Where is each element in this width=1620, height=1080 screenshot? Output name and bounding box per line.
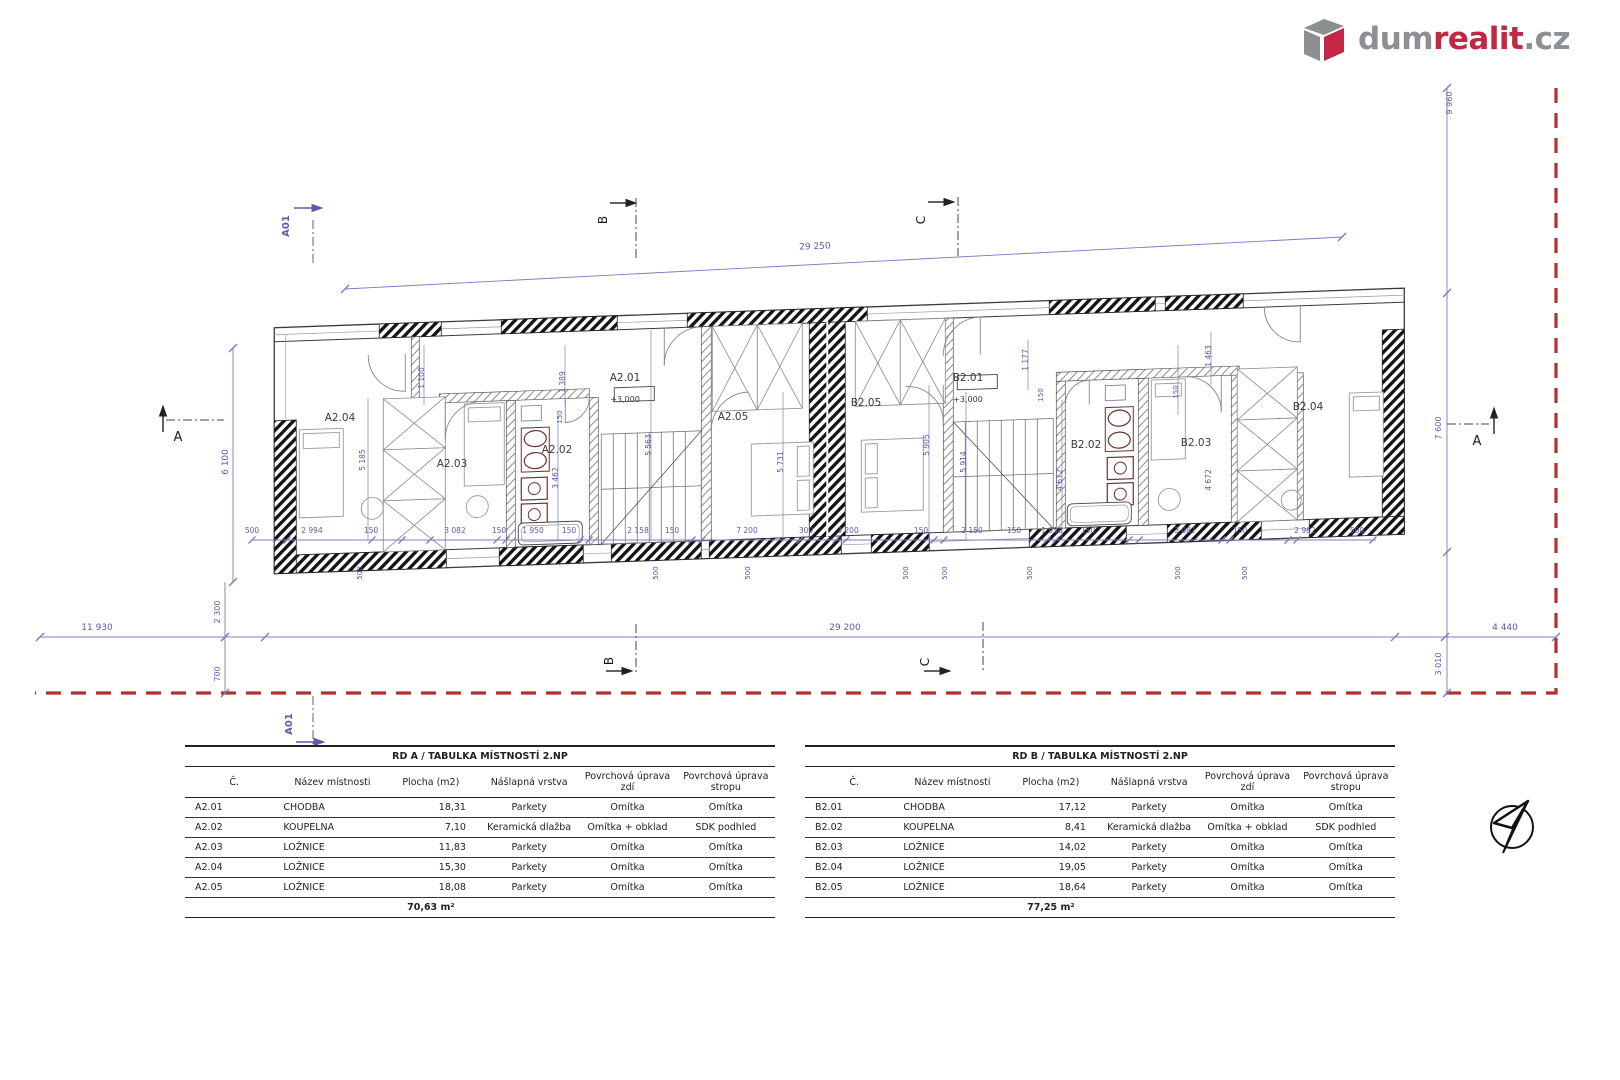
table-row: A2.01CHODBA18,31ParketyOmítkaOmítka: [185, 798, 775, 818]
table-title-text: RD B / TABULKA MÍSTNOSTÍ 2.NP: [805, 746, 1395, 767]
dim-3010: 3 010: [1434, 653, 1443, 676]
section-marker-a01-top: A01: [281, 215, 292, 237]
dim-500-3: 500: [744, 566, 752, 579]
dim-5731: 5 731: [776, 451, 785, 473]
table-title: RD A / TABULKA MÍSTNOSTÍ 2.NP: [185, 746, 775, 767]
dim-row-9: 150: [665, 526, 680, 535]
table-row: B2.03LOŽNICE14,02ParketyOmítkaOmítka: [805, 838, 1395, 858]
table-cell: 18,31: [382, 798, 480, 818]
dim-1463: 1 463: [1204, 345, 1213, 367]
table-header-cell: Plocha (m2): [382, 767, 480, 798]
table-total-value: 70,63 m²: [382, 898, 480, 918]
table-cell: A2.04: [185, 858, 283, 878]
table-cell: CHODBA: [283, 798, 381, 818]
room-label-a2-05: A2.05: [718, 411, 749, 423]
dim-500-4: 500: [902, 566, 910, 579]
dim-row-4: 3 082: [444, 526, 466, 535]
dim-row-8: 2 158: [627, 526, 649, 535]
floor-plan-page: dumrealit.cz: [0, 0, 1620, 1080]
table-cell: Keramická dlažba: [480, 818, 578, 838]
table-cell: SDK podhled: [677, 818, 775, 838]
table-header-cell: Nášlapná vrstva: [1100, 767, 1198, 798]
dim-1177: 1 177: [1021, 349, 1030, 371]
table-cell: Omítka: [1297, 878, 1395, 898]
table-cell: Omítka: [1198, 798, 1296, 818]
section-marker-a-right: A: [1473, 434, 1482, 449]
table-cell: B2.02: [805, 818, 903, 838]
table-cell: LOŽNICE: [903, 878, 1001, 898]
table-total-row: 70,63 m²: [185, 898, 775, 918]
dim-5905: 5 905: [922, 434, 931, 456]
table-cell: KOUPELNA: [283, 818, 381, 838]
dim-row-14: 2 150: [961, 526, 983, 535]
table-cell: A2.02: [185, 818, 283, 838]
room-table-a: RD A / TABULKA MÍSTNOSTÍ 2.NPČ.Název mís…: [185, 745, 775, 918]
table-cell: 15,30: [382, 858, 480, 878]
room-table-b: RD B / TABULKA MÍSTNOSTÍ 2.NPČ.Název mís…: [805, 745, 1395, 918]
table-header-cell: Povrchová úprava stropu: [1297, 767, 1395, 798]
dim-row-13: 150: [914, 526, 929, 535]
dim-row-16: 1 950: [1041, 526, 1063, 535]
table-row: A2.02KOUPELNA7,10Keramická dlažbaOmítka …: [185, 818, 775, 838]
table-cell: Omítka: [578, 838, 676, 858]
table-total-value: 77,25 m²: [1002, 898, 1100, 918]
dim-150-b: 150: [1037, 388, 1045, 401]
dim-row-15: 150: [1007, 526, 1022, 535]
elevation-label-a: +3,000: [610, 395, 640, 404]
dim-row-7: 150: [562, 526, 577, 535]
dim-row-10: 7 200: [736, 526, 758, 535]
dim-total-top: 29 250: [799, 241, 831, 252]
dim-right-offset: 4 440: [1492, 623, 1518, 633]
table-row: B2.04LOŽNICE19,05ParketyOmítkaOmítka: [805, 858, 1395, 878]
table-cell: Parkety: [1100, 858, 1198, 878]
table-cell: LOŽNICE: [283, 878, 381, 898]
dim-1100: 1 100: [417, 367, 426, 389]
table-cell: Parkety: [480, 798, 578, 818]
room-label-b2-03: B2.03: [1181, 437, 1212, 449]
table-header-cell: Č.: [185, 767, 283, 798]
table-header-row: Č.Název místnostiPlocha (m2)Nášlapná vrs…: [185, 767, 775, 798]
table-cell: A2.05: [185, 878, 283, 898]
table-cell: Parkety: [1100, 838, 1198, 858]
table-cell: LOŽNICE: [903, 838, 1001, 858]
room-label-b2-05: B2.05: [851, 397, 882, 409]
section-marker-b-top: B: [596, 216, 610, 224]
dim-row-6: 1 950: [522, 526, 544, 535]
dim-2300: 2 300: [213, 601, 222, 624]
table-title: RD B / TABULKA MÍSTNOSTÍ 2.NP: [805, 746, 1395, 767]
table-cell: 19,05: [1002, 858, 1100, 878]
table-total-row: 77,25 m²: [805, 898, 1395, 918]
table-cell: 8,41: [1002, 818, 1100, 838]
dim-row-17: 150: [1081, 526, 1096, 535]
room-label-b2-01: B2.01: [953, 372, 984, 384]
dim-5185: 5 185: [358, 449, 367, 471]
dim-7600: 7 600: [1434, 417, 1443, 440]
table-cell: Omítka + obklad: [1198, 818, 1296, 838]
dim-4672-b: 4 672: [1204, 469, 1213, 491]
room-label-b2-02: B2.02: [1071, 439, 1102, 451]
dim-1389: 1 389: [558, 371, 567, 393]
dim-4672-a: 4 672: [1055, 469, 1064, 491]
room-label-a2-04: A2.04: [325, 412, 356, 424]
table-cell: Parkety: [480, 838, 578, 858]
table-cell: B2.01: [805, 798, 903, 818]
table-cell: Omítka: [677, 838, 775, 858]
table-cell: Omítka: [677, 798, 775, 818]
table-cell: Parkety: [480, 878, 578, 898]
table-cell: 7,10: [382, 818, 480, 838]
table-cell: B2.04: [805, 858, 903, 878]
table-cell: KOUPELNA: [903, 818, 1001, 838]
table-header-cell: Název místnosti: [283, 767, 381, 798]
table-header-cell: Povrchová úprava zdí: [578, 767, 676, 798]
dim-row-2: 2 994: [301, 526, 323, 535]
elevation-label-b: +3,000: [953, 395, 983, 404]
section-a01-bottom: [296, 696, 324, 746]
table-row: A2.04LOŽNICE15,30ParketyOmítkaOmítka: [185, 858, 775, 878]
dim-row-3: 150: [364, 526, 379, 535]
table-cell: 17,12: [1002, 798, 1100, 818]
room-label-b2-04: B2.04: [1293, 401, 1324, 413]
right-wall: [1382, 329, 1404, 517]
dim-500-8: 500: [1241, 566, 1249, 579]
section-c-bottom: [924, 622, 983, 675]
table-cell: LOŽNICE: [283, 858, 381, 878]
section-b-top: [610, 198, 636, 258]
table-cell: LOŽNICE: [283, 838, 381, 858]
dim-500-5: 500: [941, 566, 949, 579]
dim-row-11: 300: [799, 526, 814, 535]
table-cell: Parkety: [480, 858, 578, 878]
table-cell: 11,83: [382, 838, 480, 858]
table-row: A2.03LOŽNICE11,83ParketyOmítkaOmítka: [185, 838, 775, 858]
dim-row-1: 500: [245, 526, 260, 535]
table-cell: Keramická dlažba: [1100, 818, 1198, 838]
room-label-a2-01: A2.01: [610, 372, 641, 384]
table-cell: Omítka: [578, 878, 676, 898]
section-marker-a-left: A: [174, 430, 183, 445]
table-cell: Omítka: [578, 858, 676, 878]
table-cell: Parkety: [1100, 798, 1198, 818]
table-cell: CHODBA: [903, 798, 1001, 818]
table-cell: Omítka: [1297, 858, 1395, 878]
table-title-text: RD A / TABULKA MÍSTNOSTÍ 2.NP: [185, 746, 775, 767]
table-cell: A2.01: [185, 798, 283, 818]
table-row: B2.01CHODBA17,12ParketyOmítkaOmítka: [805, 798, 1395, 818]
left-wall: [274, 420, 296, 574]
dim-9960: 9 960: [1445, 92, 1454, 115]
table-cell: Omítka: [1297, 798, 1395, 818]
table-cell: Omítka: [578, 798, 676, 818]
section-c-top: [928, 197, 958, 256]
table-cell: Omítka: [1297, 838, 1395, 858]
dim-row-19: 150: [1233, 526, 1248, 535]
section-a01-top: [294, 205, 322, 267]
dim-3462: 3 462: [551, 467, 560, 489]
dim-left-offset: 11 930: [81, 623, 113, 633]
table-cell: LOŽNICE: [903, 858, 1001, 878]
table-cell: Omítka: [677, 858, 775, 878]
dim-700: 700: [213, 666, 222, 681]
dim-500-6: 500: [1026, 566, 1034, 579]
table-header-cell: Plocha (m2): [1002, 767, 1100, 798]
section-marker-c-bottom: C: [918, 658, 932, 666]
table-header-row: Č.Název místnostiPlocha (m2)Nášlapná vrs…: [805, 767, 1395, 798]
table-row: B2.02KOUPELNA8,41Keramická dlažbaOmítka …: [805, 818, 1395, 838]
table-header-cell: Č.: [805, 767, 903, 798]
table-cell: Omítka: [677, 878, 775, 898]
dim-500-1: 500: [356, 566, 364, 579]
table-cell: 18,08: [382, 878, 480, 898]
table-cell: Parkety: [1100, 878, 1198, 898]
table-cell: 14,02: [1002, 838, 1100, 858]
section-marker-c-top: C: [914, 216, 928, 224]
table-cell: B2.05: [805, 878, 903, 898]
table-row: B2.05LOŽNICE18,64ParketyOmítkaOmítka: [805, 878, 1395, 898]
section-b-bottom: [606, 624, 636, 675]
dim-row-18: 3 082: [1174, 526, 1196, 535]
section-a-left: [160, 406, 225, 432]
table-cell: Omítka: [1198, 858, 1296, 878]
table-header-cell: Název místnosti: [903, 767, 1001, 798]
table-cell: B2.03: [805, 838, 903, 858]
dim-500-7: 500: [1174, 566, 1182, 579]
dim-left-height: 6 100: [221, 449, 231, 475]
table-header-cell: Povrchová úprava zdí: [1198, 767, 1296, 798]
room-label-a2-03: A2.03: [437, 458, 468, 470]
section-a-right: [1447, 408, 1498, 434]
table-cell: 18,64: [1002, 878, 1100, 898]
table-cell: A2.03: [185, 838, 283, 858]
dim-building-length: 29 200: [829, 623, 861, 633]
dim-150-c: 150: [1172, 385, 1180, 398]
table-cell: Omítka: [1198, 838, 1296, 858]
dim-500-2: 500: [652, 566, 660, 579]
table-cell: SDK podhled: [1297, 818, 1395, 838]
dim-5914: 5 914: [959, 451, 968, 473]
dim-5563: 5 563: [644, 434, 653, 456]
table-header-cell: Nášlapná vrstva: [480, 767, 578, 798]
dim-row-21: 500: [1350, 526, 1365, 535]
section-marker-b-bottom: B: [602, 657, 616, 665]
dim-row-12: 3 200: [837, 526, 859, 535]
dim-150-a: 150: [556, 410, 564, 423]
table-cell: Omítka: [1198, 878, 1296, 898]
table-header-cell: Povrchová úprava stropu: [677, 767, 775, 798]
table-row: A2.05LOŽNICE18,08ParketyOmítkaOmítka: [185, 878, 775, 898]
table-cell: Omítka + obklad: [578, 818, 676, 838]
floor-plan-drawing: A2.04A2.03A2.02A2.01A2.05B2.05B2.01B2.02…: [0, 0, 1620, 1080]
dim-row-20: 2 962: [1294, 526, 1316, 535]
section-marker-a01-bottom: A01: [284, 713, 295, 735]
room-label-a2-02: A2.02: [542, 444, 573, 456]
north-arrow-icon: [1491, 801, 1533, 853]
dim-row-5: 150: [492, 526, 507, 535]
